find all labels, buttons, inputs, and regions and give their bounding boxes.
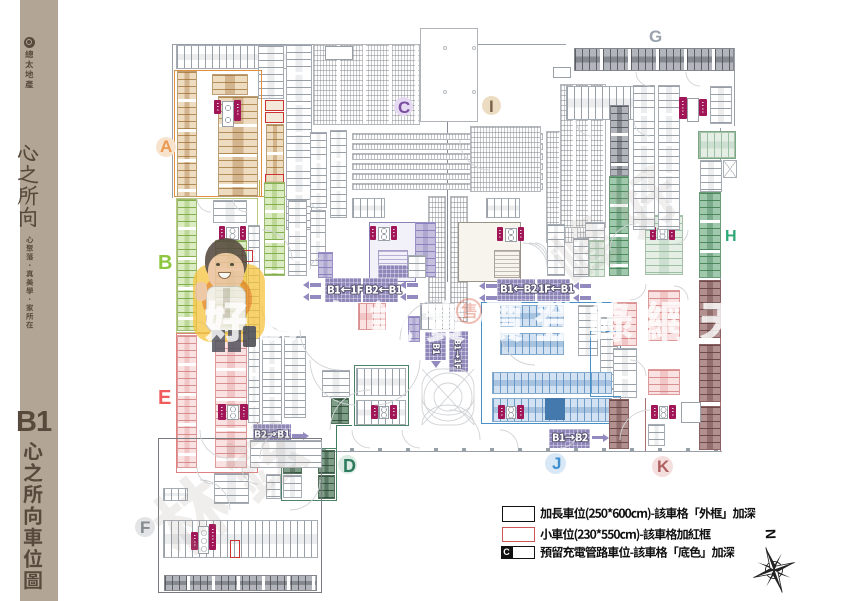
svg-text:N: N	[762, 529, 778, 540]
